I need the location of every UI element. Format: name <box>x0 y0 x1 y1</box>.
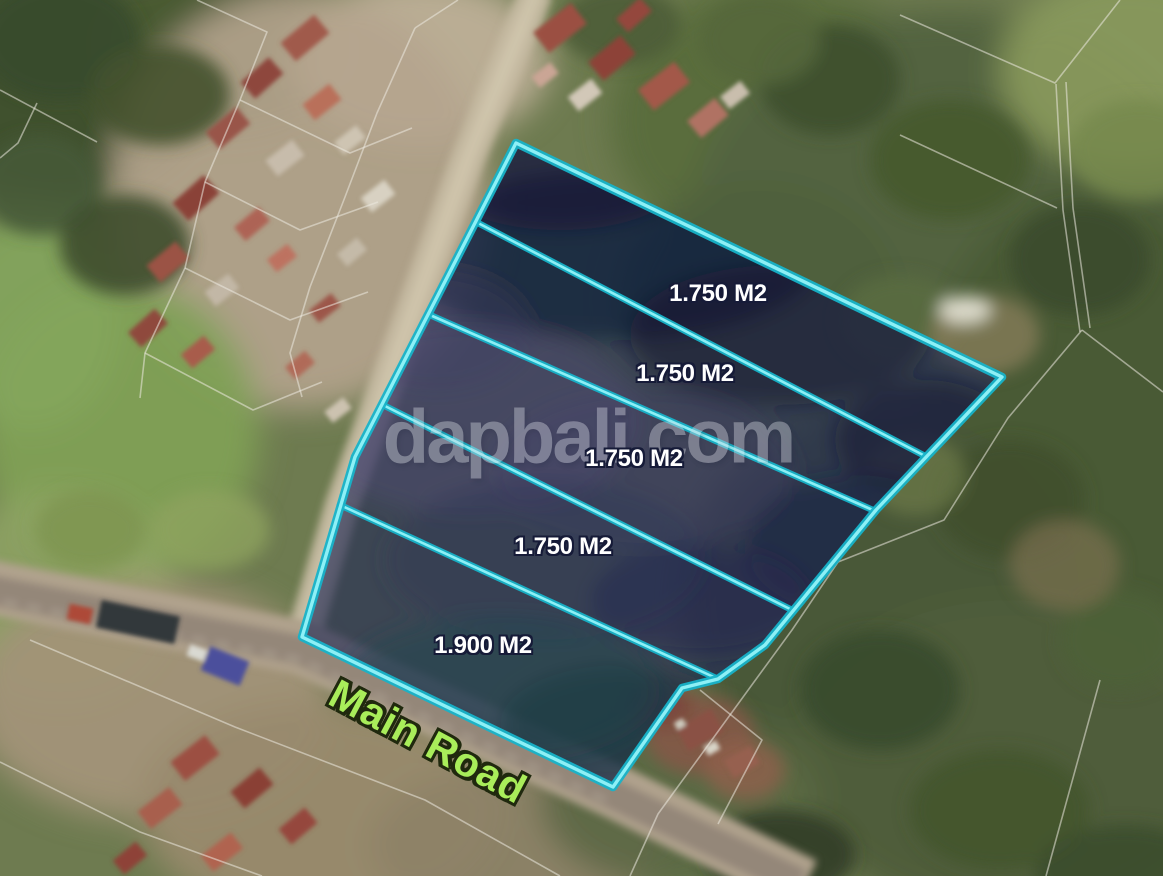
plot-area-label-1: 1.750 M2 <box>669 280 767 308</box>
plot-area-label-3: 1.750 M2 <box>585 445 683 473</box>
plot-area-label-2: 1.750 M2 <box>636 360 734 388</box>
tree-clump <box>1010 520 1120 610</box>
tree-clump <box>939 296 991 324</box>
satellite-map-image: dapbali.com 1.750 M2 1.750 M2 1.750 M2 1… <box>0 0 1163 876</box>
tree-clump <box>60 195 190 295</box>
plot-area-label-5: 1.900 M2 <box>434 632 532 660</box>
tree-clump <box>35 490 145 570</box>
tree-clump <box>800 630 960 750</box>
plot-area-label-4: 1.750 M2 <box>514 533 612 561</box>
tree-clump <box>150 490 270 570</box>
tree-clump <box>870 100 1030 220</box>
